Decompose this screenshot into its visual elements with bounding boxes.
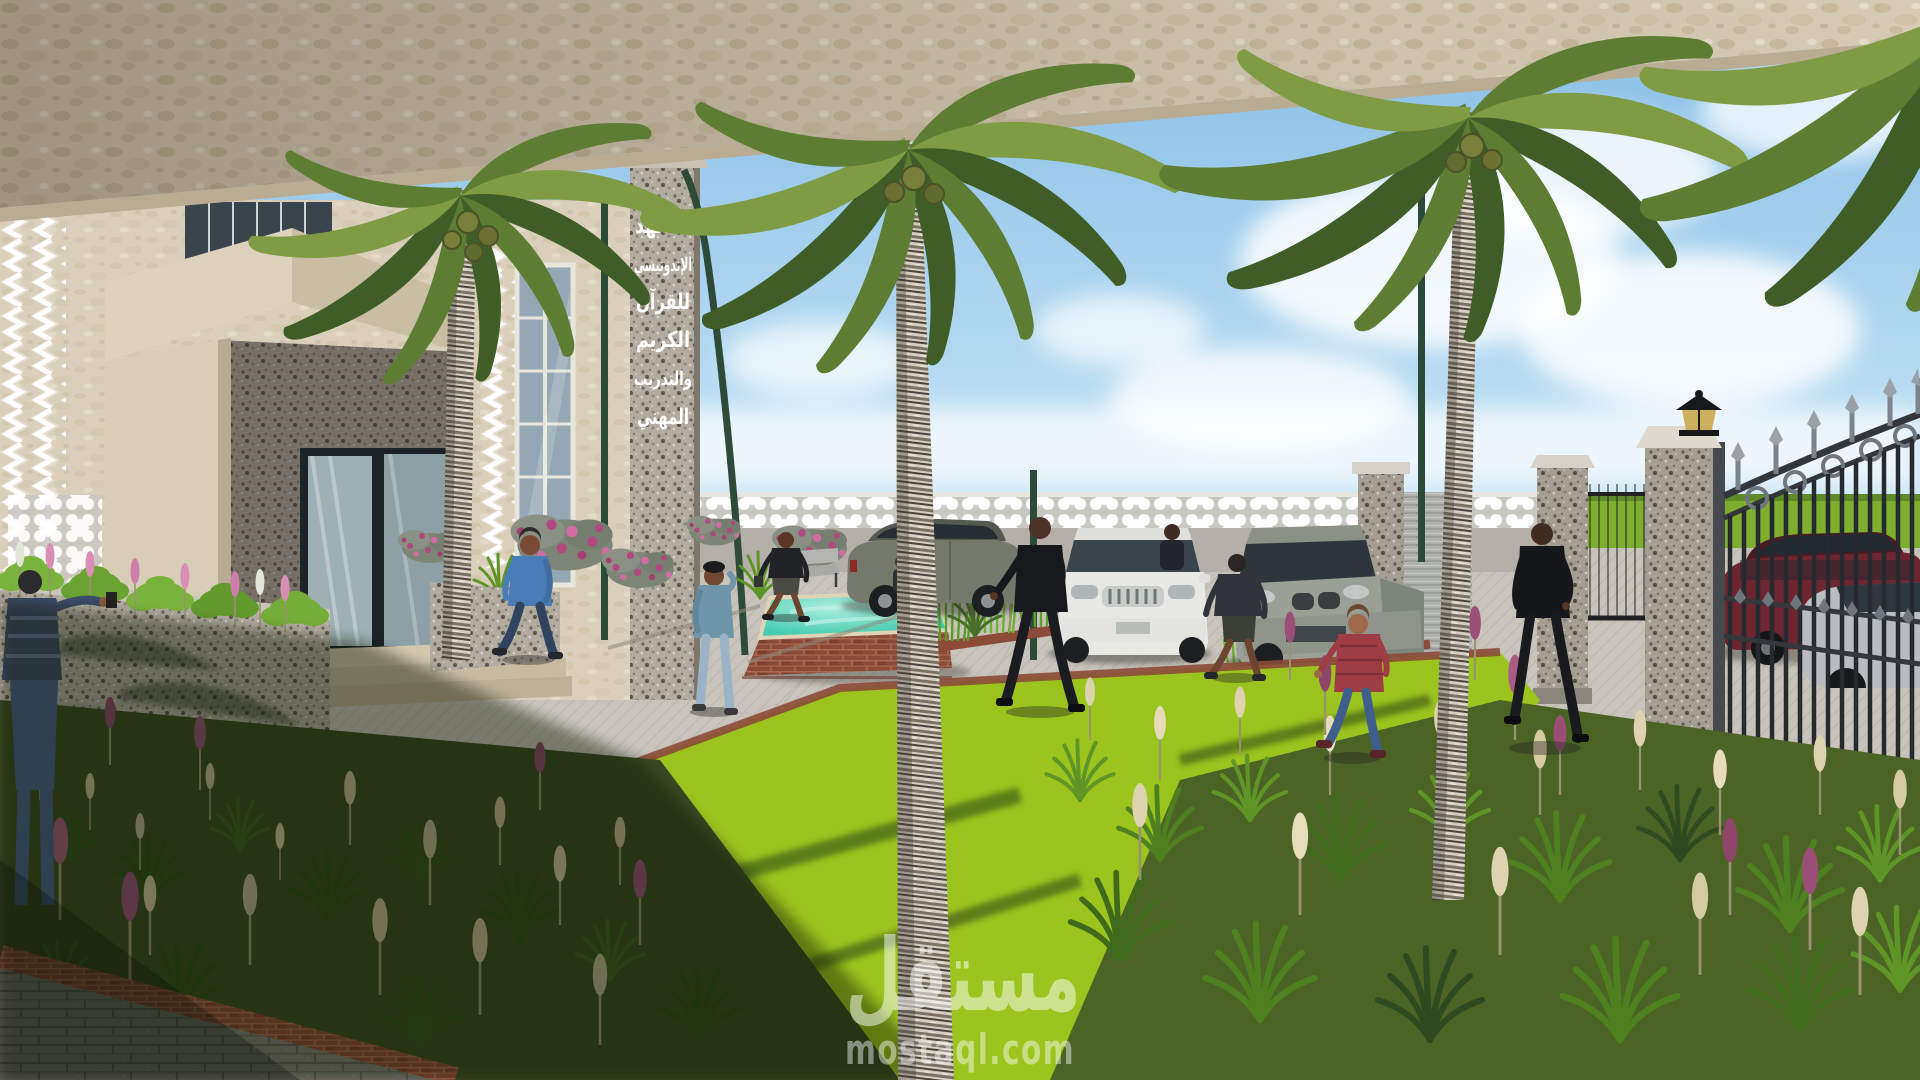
wall-lattice-band-2 xyxy=(1470,496,1537,528)
sign-word-3: الكريم xyxy=(636,328,690,353)
watermark-latin: mostaql.com xyxy=(845,1025,1075,1074)
sign-word-4: والتدريب xyxy=(634,368,692,390)
sign-word-5: المهني xyxy=(637,405,689,430)
architectural-render: المعهد الإندونيسي للقرآن الكريم والتدريب… xyxy=(0,0,1920,1080)
watermark: مستقل mostaql.com xyxy=(845,917,1081,1074)
streetlight-pole-4 xyxy=(1418,142,1425,562)
sign-word-1: الإندونيسي xyxy=(634,254,692,276)
suv-white xyxy=(1048,528,1212,664)
render-canvas: المعهد الإندونيسي للقرآن الكريم والتدريب… xyxy=(0,0,1920,1080)
gatehouse-cap xyxy=(1352,462,1410,474)
car-silver xyxy=(1800,582,1920,688)
watermark-arabic: مستقل xyxy=(846,917,1081,1034)
